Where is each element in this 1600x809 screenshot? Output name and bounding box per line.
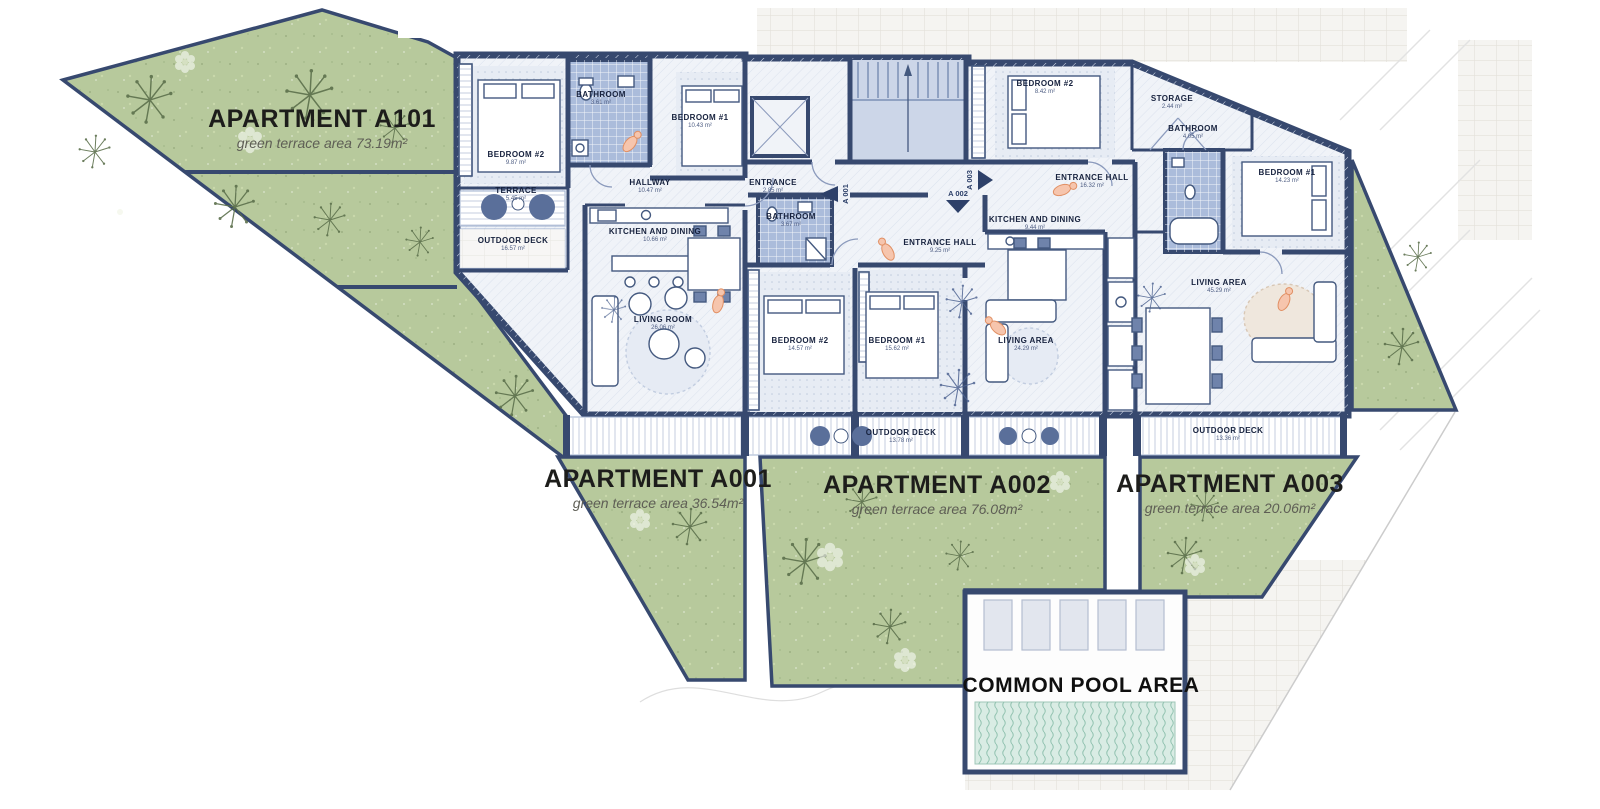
apartment-a003-subtitle: green terrace area 20.06m² (1116, 500, 1344, 516)
floor-plan-page: A 001 A 002 A 003 APARTMENT A101 green t… (0, 0, 1600, 809)
common-pool-area-title: COMMON POOL AREA (962, 674, 1199, 698)
room-label-a101-outdoor-deck: OUTDOOR DECK 16.57 m² (478, 236, 549, 254)
apartment-a003-title: APARTMENT A003 (1116, 470, 1344, 499)
apartment-a002-subtitle: green terrace area 76.08m² (823, 501, 1051, 517)
apartment-a003-title-block: APARTMENT A003 green terrace area 20.06m… (1116, 470, 1344, 516)
room-label-a101-terrace: TERRACE 5.45 m² (495, 186, 536, 204)
room-label-a002-bedroom1: BEDROOM #1 15.62 m² (869, 336, 926, 354)
room-label-a003-storage: STORAGE 2.44 m² (1151, 94, 1193, 112)
entrance-label-a003: A 003 (965, 170, 974, 190)
room-label-a101-bathroom: BATHROOM 3.61 m² (576, 90, 626, 108)
room-label-a003-living: LIVING AREA 45.29 m² (1191, 278, 1247, 296)
apartment-a001-subtitle: green terrace area 36.54m² (544, 495, 772, 511)
apartment-a001-title-block: APARTMENT A001 green terrace area 36.54m… (544, 465, 772, 511)
room-label-a101-bedroom2: BEDROOM #2 9.87 m² (488, 150, 545, 168)
garden-right-triangle (1352, 160, 1456, 410)
room-label-a002-living: LIVING AREA 24.29 m² (998, 336, 1054, 354)
room-label-a101-bedroom1: BEDROOM #1 10.43 m² (672, 113, 729, 131)
room-label-a003-entrance-hall: ENTRANCE HALL 16.32 m² (1055, 173, 1128, 191)
room-label-a101-kitchen: KITCHEN AND DINING 10.66 m² (609, 227, 701, 245)
room-label-a003-bedroom2: BEDROOM #2 8.42 m² (1017, 79, 1074, 97)
room-label-a002-entrance-hall: ENTRANCE HALL 9.25 m² (903, 238, 976, 256)
room-label-a002-bedroom2: BEDROOM #2 14.57 m² (772, 336, 829, 354)
room-label-a003-bathroom: BATHROOM 4.05 m² (1168, 124, 1218, 142)
site-notch (398, 12, 426, 38)
apartment-a001-title: APARTMENT A001 (544, 465, 772, 494)
apartment-a101-subtitle: green terrace area 73.19m² (208, 135, 436, 151)
room-label-a002-kitchen: KITCHEN AND DINING 9.44 m² (989, 215, 1081, 233)
room-label-a003-bedroom1: BEDROOM #1 14.23 m² (1259, 168, 1316, 186)
room-label-a101-living: LIVING ROOM 26.06 m² (634, 315, 692, 333)
room-label-a002-bathroom: BATHROOM 3.67 m² (766, 212, 816, 230)
apartment-a002-title: APARTMENT A002 (823, 471, 1051, 500)
apartment-a002-title-block: APARTMENT A002 green terrace area 76.08m… (823, 471, 1051, 517)
room-label-a003-outdoor-deck: OUTDOOR DECK 13.36 m² (1193, 426, 1264, 444)
entrance-label-a001: A 001 (841, 184, 850, 204)
apartment-a101-title: APARTMENT A101 (208, 105, 436, 134)
room-label-a101-hallway: HALLWAY 10.47 m² (629, 178, 670, 196)
room-label-a002-outdoor-deck: OUTDOOR DECK 13.78 m² (866, 428, 937, 446)
apartment-a101-title-block: APARTMENT A101 green terrace area 73.19m… (208, 105, 436, 151)
pool-loungers (984, 600, 1164, 650)
room-label-a101-entrance: ENTRANCE 2.85 m² (749, 178, 797, 196)
